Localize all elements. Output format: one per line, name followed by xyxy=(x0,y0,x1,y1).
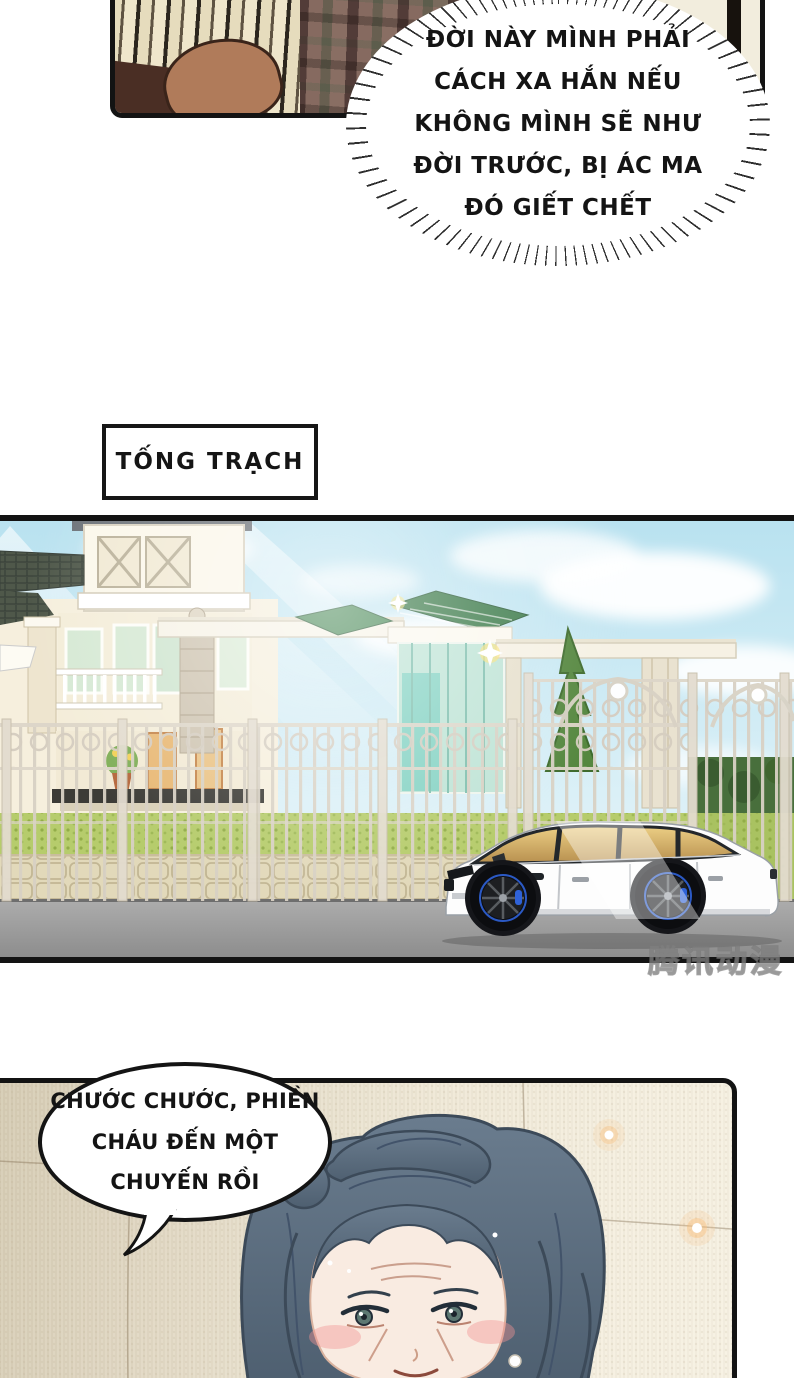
earring xyxy=(509,1355,521,1367)
front-wheel xyxy=(465,860,541,936)
location-label-text: TỐNG TRẠCH xyxy=(116,449,305,475)
blush-left xyxy=(309,1325,361,1349)
burst-bubble-text: ĐỜI NÀY MÌNH PHẢI CÁCH XA HẮN NẾU KHÔNG … xyxy=(413,20,702,229)
grandma-bubble-text: CHƯỚC CHƯỚC, PHIỀN CHÁU ĐẾN MỘT CHUYẾN R… xyxy=(50,1081,319,1204)
location-label-box: TỐNG TRẠCH xyxy=(102,424,318,500)
watermark-text: 腾讯动漫 xyxy=(648,936,784,981)
bubble-tail xyxy=(122,1209,182,1257)
burst-bubble: ĐỜI NÀY MÌNH PHẢI CÁCH XA HẮN NẾU KHÔNG … xyxy=(366,4,750,246)
blush-right xyxy=(467,1320,515,1344)
mansion-scene xyxy=(0,521,794,957)
grandma-bubble: CHƯỚC CHƯỚC, PHIỀN CHÁU ĐẾN MỘT CHUYẾN R… xyxy=(38,1062,332,1222)
panel-mansion xyxy=(0,515,794,963)
comic-page: ĐỜI NÀY MÌNH PHẢI CÁCH XA HẮN NẾU KHÔNG … xyxy=(0,0,794,1378)
